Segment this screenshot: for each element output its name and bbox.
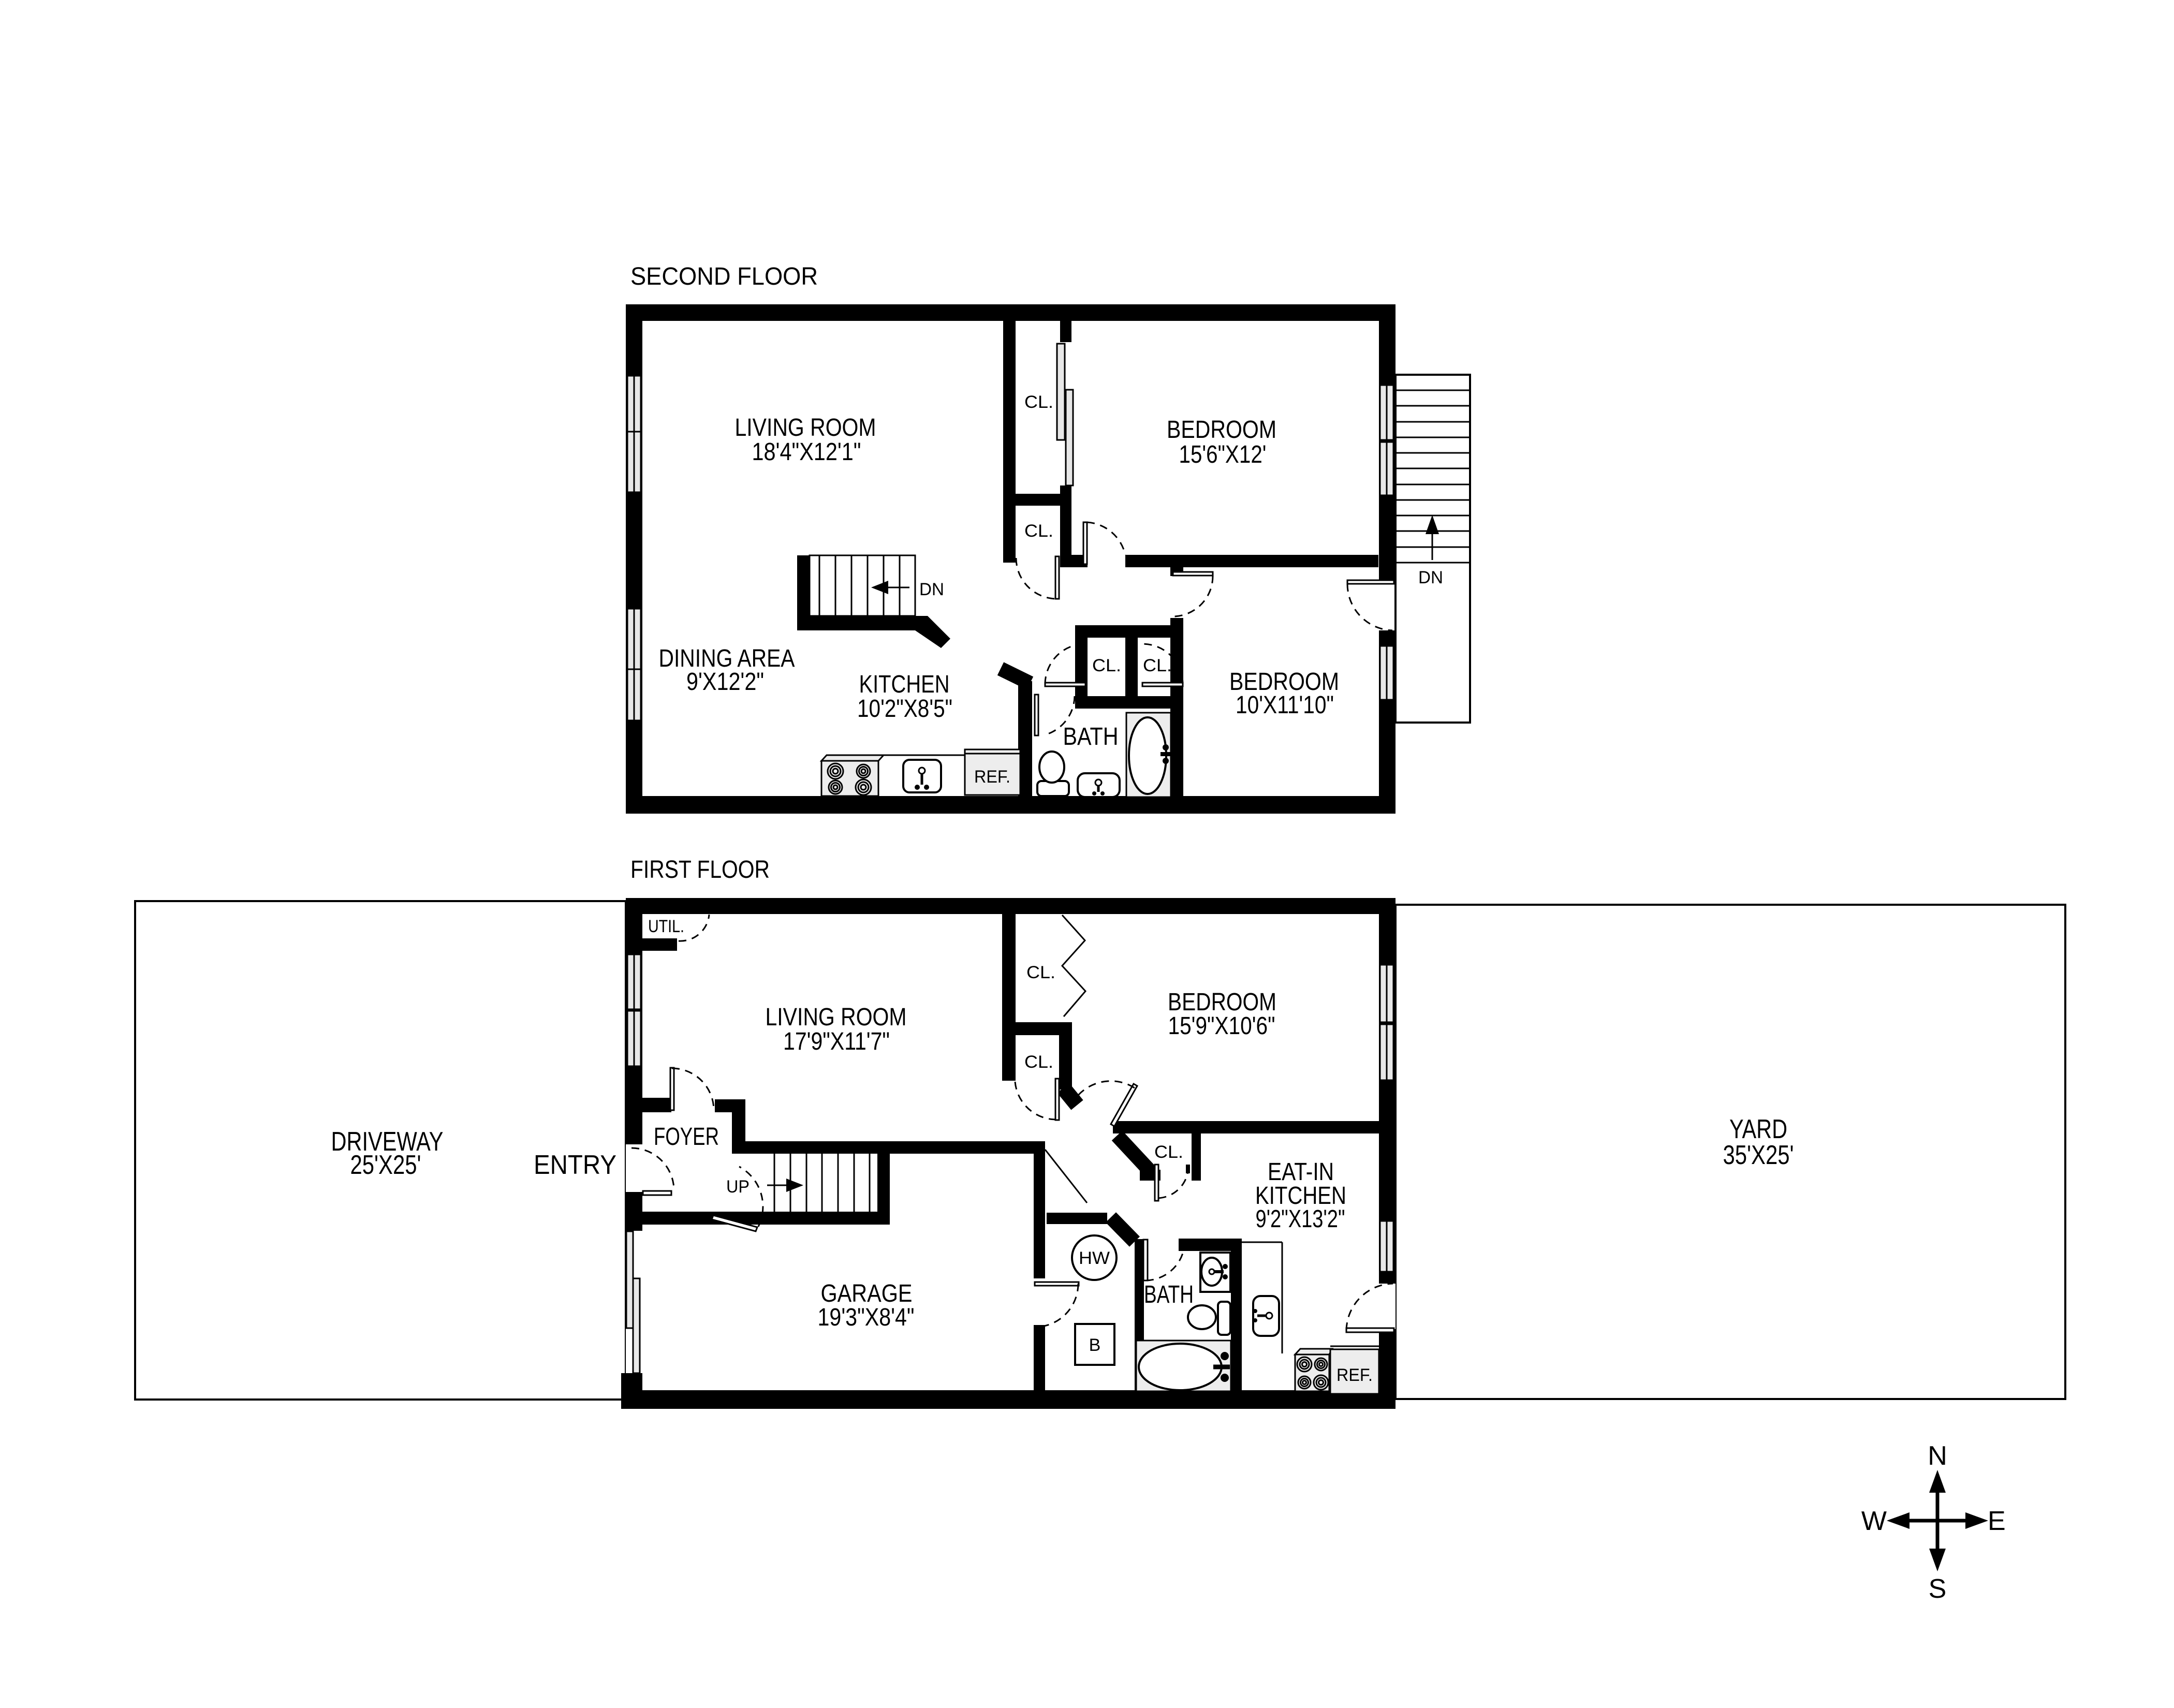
svg-text:BEDROOM: BEDROOM [1167,416,1276,444]
svg-text:REF.: REF. [1336,1365,1373,1385]
svg-text:FOYER: FOYER [654,1123,719,1151]
svg-text:CL.: CL. [1154,1142,1183,1162]
svg-text:18'4"X12'1": 18'4"X12'1" [752,438,861,466]
svg-text:CL.: CL. [1026,963,1055,982]
svg-text:9'X12'2": 9'X12'2" [686,668,764,696]
svg-text:CL.: CL. [1024,1052,1053,1072]
svg-text:CL.: CL. [1024,392,1053,412]
svg-text:ENTRY: ENTRY [534,1150,616,1180]
svg-text:UP: UP [726,1177,750,1197]
svg-text:LIVING ROOM: LIVING ROOM [735,414,876,441]
svg-text:CL.: CL. [1092,656,1121,675]
svg-text:FIRST FLOOR: FIRST FLOOR [630,856,770,884]
svg-text:15'9"X10'6": 15'9"X10'6" [1168,1012,1275,1040]
svg-text:CL.: CL. [1143,656,1172,675]
svg-text:LIVING ROOM: LIVING ROOM [766,1004,907,1031]
svg-text:N: N [1928,1441,1947,1471]
svg-text:W: W [1861,1506,1887,1536]
svg-text:25'X25': 25'X25' [350,1150,421,1180]
svg-text:REF.: REF. [974,767,1010,787]
svg-text:BATH: BATH [1063,723,1119,750]
svg-text:19'3"X8'4": 19'3"X8'4" [818,1304,915,1331]
svg-text:17'9"X11'7": 17'9"X11'7" [783,1028,890,1055]
svg-text:S: S [1929,1574,1947,1604]
svg-text:B: B [1089,1335,1101,1355]
svg-text:DN: DN [1418,568,1443,587]
svg-text:SECOND FLOOR: SECOND FLOOR [630,263,818,290]
svg-text:CL.: CL. [1024,521,1053,541]
svg-text:KITCHEN: KITCHEN [859,671,950,698]
svg-text:UTIL.: UTIL. [648,917,684,936]
svg-text:10'2"X8'5": 10'2"X8'5" [857,695,952,723]
svg-text:E: E [1988,1506,2006,1536]
svg-text:15'6"X12': 15'6"X12' [1179,441,1267,468]
svg-text:BATH: BATH [1144,1281,1194,1308]
svg-text:10'X11'10": 10'X11'10" [1236,691,1334,719]
svg-text:DN: DN [919,580,944,599]
svg-text:35'X25': 35'X25' [1723,1140,1794,1170]
svg-text:HW: HW [1079,1248,1110,1268]
svg-text:9'2"X13'2": 9'2"X13'2" [1256,1205,1345,1233]
